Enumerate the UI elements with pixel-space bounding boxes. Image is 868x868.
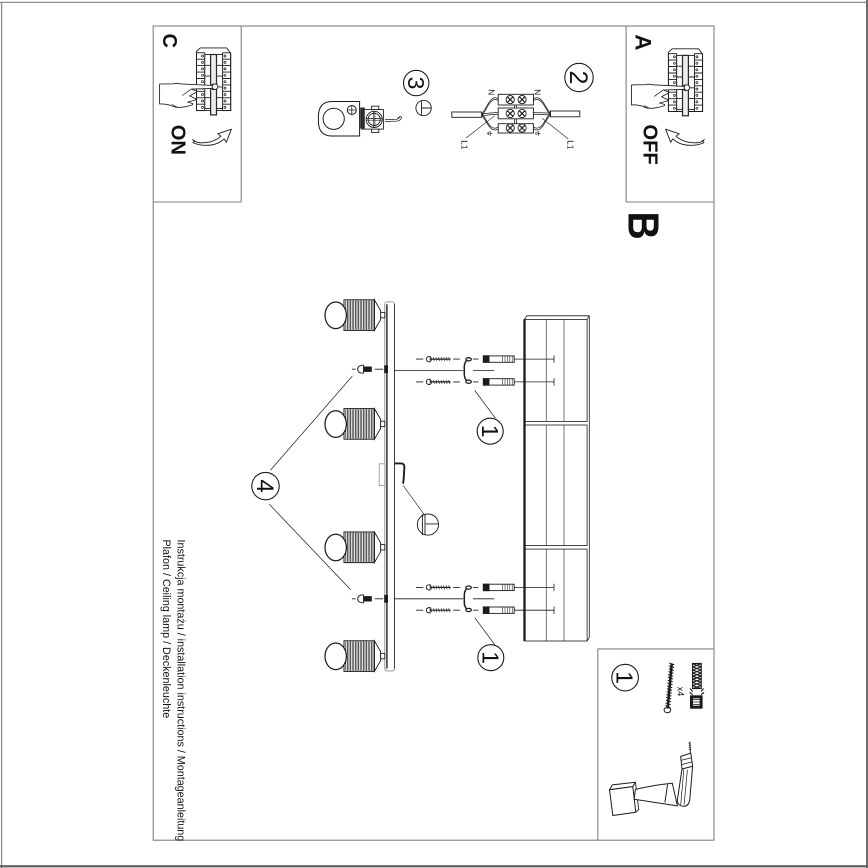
- svg-text:Plafon / Ceiling lamp / Decken: Plafon / Ceiling lamp / Deckenleuchte: [160, 540, 172, 719]
- svg-text:N: N: [532, 89, 541, 95]
- svg-text:OFF: OFF: [639, 124, 661, 164]
- svg-text:1: 1: [612, 671, 638, 684]
- svg-text:2: 2: [564, 71, 592, 85]
- svg-text:C: C: [158, 34, 180, 48]
- svg-text:Instrukcja montażu / installat: Instrukcja montażu / installation instru…: [175, 540, 187, 842]
- svg-text:x4: x4: [675, 687, 685, 697]
- svg-text:4: 4: [251, 479, 278, 492]
- svg-text:B: B: [618, 212, 666, 240]
- svg-text:1: 1: [477, 651, 503, 664]
- svg-text:L1: L1: [566, 140, 575, 150]
- svg-text:1: 1: [477, 425, 503, 438]
- svg-text:ON: ON: [167, 125, 189, 155]
- svg-text:3: 3: [403, 77, 429, 90]
- svg-text:A: A: [631, 34, 656, 50]
- svg-text:L1: L1: [460, 140, 469, 150]
- svg-text:N: N: [487, 89, 496, 95]
